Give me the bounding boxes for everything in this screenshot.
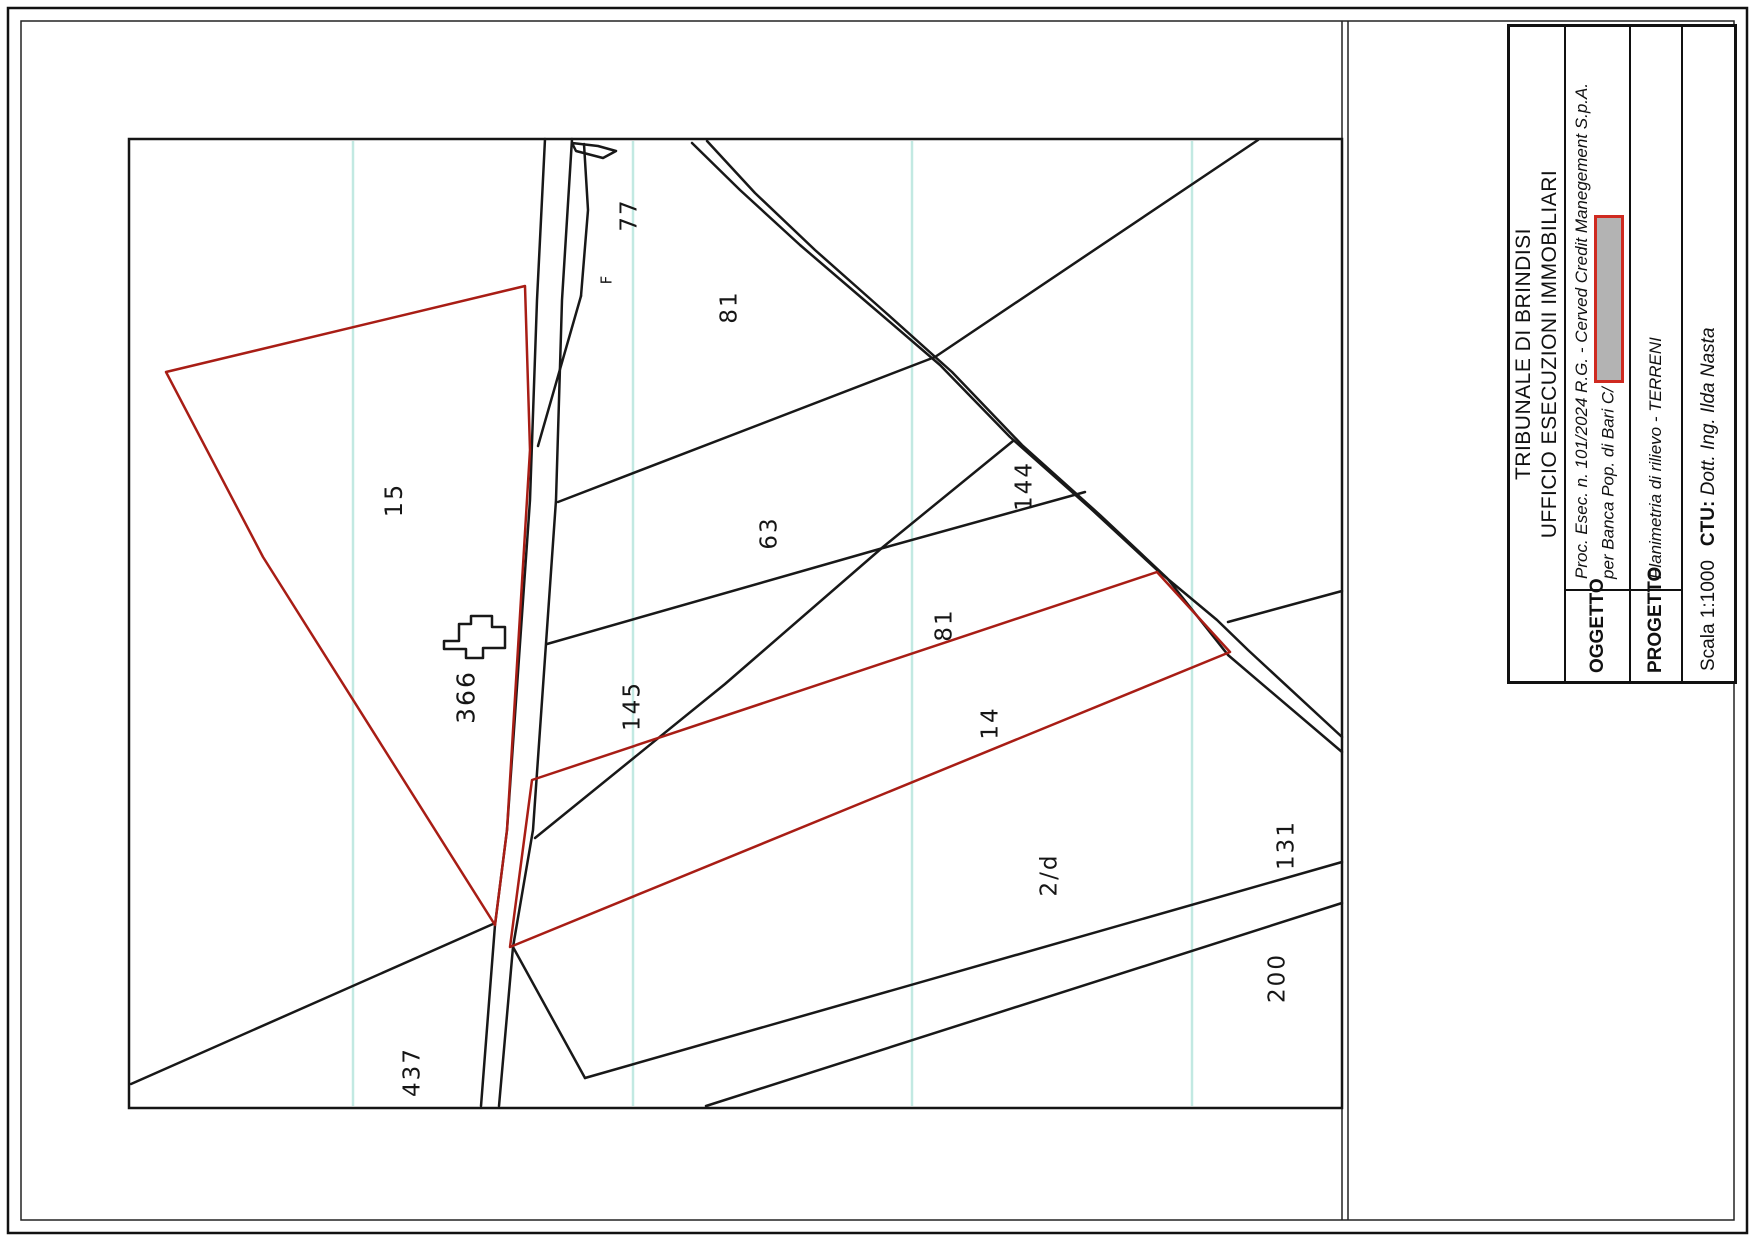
map-frame: [129, 139, 1342, 1108]
court-name: TRIBUNALE DI BRINDISI: [1511, 27, 1537, 681]
parcel-number-text: 145: [620, 681, 646, 731]
parcel-number-text: 144: [1012, 461, 1038, 511]
scala-ctu-row: Scala 1:1000 CTU: Dott. Ing. Ilda Nasta: [1683, 27, 1734, 681]
parcel-number-label: 131: [1276, 820, 1299, 870]
parcel-number-text: 2/d: [1037, 854, 1063, 897]
parcel-number-label: 81: [934, 608, 957, 641]
parcel-number-label: F: [600, 274, 615, 285]
parcel-number-text: 15: [380, 483, 408, 518]
parcel-number-label: 2/d: [1039, 854, 1062, 897]
parcel-number-label: 15: [382, 483, 406, 518]
redaction-box: [1594, 215, 1624, 383]
parcel-number-label: 63: [759, 516, 782, 549]
oggetto-label: OGGETTO: [1566, 589, 1630, 681]
parcel-number-text: 200: [1265, 953, 1291, 1003]
parcel-number-label: 145: [622, 681, 645, 731]
parcel-number-text: 81: [932, 608, 958, 641]
scanned-document-page: 15 366 77 F 81 63 144 145 81 14 2/d 437 …: [0, 0, 1755, 1241]
parcel-number-label: 77: [619, 198, 642, 231]
oggetto-value: Proc. Esec. n. 101/2024 R.G. - Cerved Cr…: [1568, 27, 1627, 589]
parcel-number-label: 144: [1014, 461, 1037, 511]
scale-value: Scala 1:1000: [1698, 560, 1720, 671]
parcel-number-text: 77: [617, 198, 643, 231]
parcel-number-text: 131: [1274, 820, 1300, 870]
parcel-number-text: 63: [757, 516, 783, 549]
progetto-value: Planimetria di rilievo - TERRENI: [1642, 27, 1671, 589]
oggetto-bank-text: per Banca Pop. di Bari C/: [1599, 387, 1618, 579]
court-office: UFFICIO ESECUZIONI IMMOBILIARI: [1537, 27, 1563, 681]
parcel-number-text: 81: [717, 290, 743, 323]
cadastral-map-drawing: [0, 0, 1755, 1241]
parcel-number-label: 437: [402, 1047, 425, 1097]
parcel-number-text: 14: [978, 706, 1004, 739]
progetto-row: PROGETTO Planimetria di rilievo - TERREN…: [1631, 27, 1683, 681]
parcel-number-text: 437: [400, 1047, 426, 1097]
oggetto-proc-text: Proc. Esec. n. 101/2024 R.G. - Cerved Cr…: [1572, 83, 1591, 579]
ctu-name: Dott. Ing. Ilda Nasta: [1698, 327, 1720, 495]
ctu-label: CTU:: [1698, 501, 1720, 546]
parcel-number-label: 366: [454, 670, 479, 724]
progetto-label: PROGETTO: [1631, 589, 1681, 681]
parcel-number-label: 81: [719, 290, 742, 323]
parcel-number-text: F: [598, 274, 616, 285]
parcel-number-label: 200: [1267, 953, 1290, 1003]
title-block-table: TRIBUNALE DI BRINDISI UFFICIO ESECUZIONI…: [1507, 24, 1737, 684]
parcel-number-label: 14: [980, 706, 1003, 739]
title-block-header: TRIBUNALE DI BRINDISI UFFICIO ESECUZIONI…: [1510, 27, 1566, 681]
parcel-number-text: 366: [452, 670, 481, 724]
oggetto-row: OGGETTO Proc. Esec. n. 101/2024 R.G. - C…: [1566, 27, 1632, 681]
